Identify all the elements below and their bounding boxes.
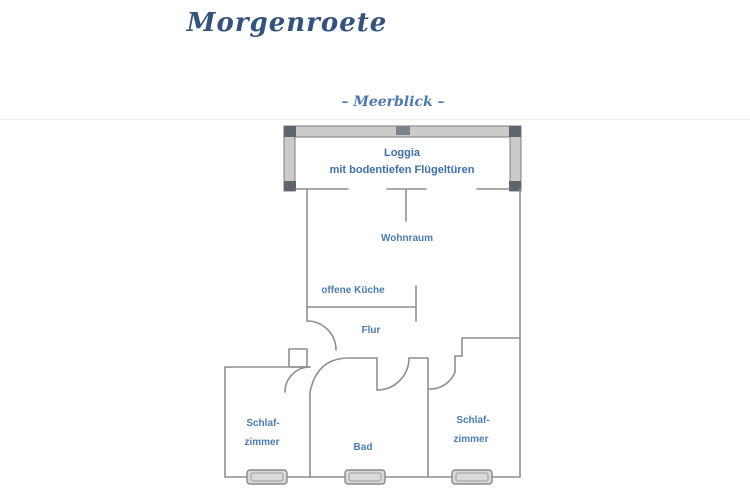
entrance-door-arc <box>307 321 336 350</box>
floor-plan-drawing: Loggia mit bodentiefen Flügeltüren Wohnr… <box>0 0 750 500</box>
bedroom-left-door-arc <box>285 367 310 392</box>
room-label-schlafzimmer-left-line2: zimmer <box>244 437 279 448</box>
room-label-wohnraum: Wohnraum <box>381 233 433 244</box>
loggia-top-mark <box>396 126 410 135</box>
bath-curved-wall <box>310 358 377 392</box>
room-label-schlafzimmer-right-line2: zimmer <box>453 434 488 445</box>
room-label-schlafzimmer-left-line1: Schlaf- <box>246 418 279 429</box>
room-label-loggia-line2: mit bodentiefen Flügeltüren <box>330 164 475 176</box>
loggia-wall-cap-top-left <box>284 126 296 137</box>
bath-door-arc <box>377 358 409 390</box>
room-label-flur: Flur <box>362 325 381 336</box>
window-bedroom-left <box>247 470 287 484</box>
loggia-wall-cap-bottom-left <box>284 181 296 191</box>
room-label-bad: Bad <box>354 442 373 453</box>
room-label-kueche: offene Küche <box>321 285 385 296</box>
entrance-step <box>289 349 307 367</box>
floor-plan-page: Morgenroete – Meerblick – <box>0 0 750 500</box>
loggia-wall-cap-top-right <box>509 126 521 137</box>
window-bath <box>345 470 385 484</box>
room-label-schlafzimmer-right-line1: Schlaf- <box>456 415 489 426</box>
room-label-loggia-line1: Loggia <box>384 147 421 159</box>
window-bedroom-right <box>452 470 492 484</box>
bedroom-right-door-arc <box>428 372 455 389</box>
